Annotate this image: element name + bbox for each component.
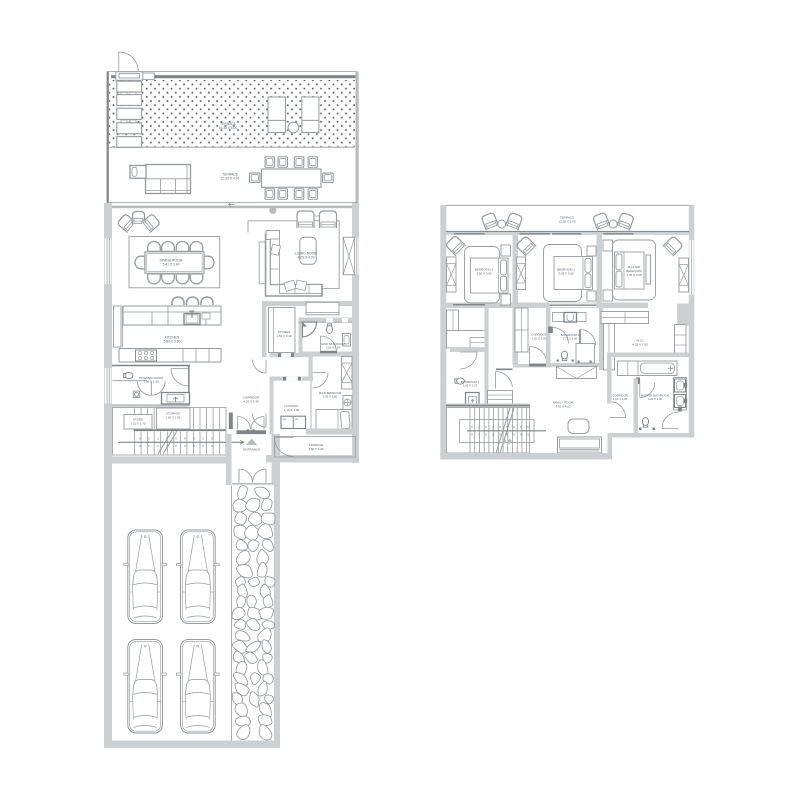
svg-text:BEDROOM 23.60 X 3.05: BEDROOM 23.60 X 3.05	[475, 268, 493, 276]
svg-text:STORES1.50 X 3.10: STORES1.50 X 3.10	[276, 330, 292, 338]
svg-text:BEDROOM 13.55 X 3.05: BEDROOM 13.55 X 3.05	[557, 268, 575, 276]
svg-text:WM: WM	[283, 419, 287, 421]
svg-text:CORRIDOR4.20 X 1.40: CORRIDOR4.20 X 1.40	[243, 396, 261, 404]
svg-text:TERRACE4.50 X 1.05: TERRACE4.50 X 1.05	[308, 443, 324, 451]
svg-text:BATHROOM 12.75 X 1.60: BATHROOM 12.75 X 1.60	[561, 333, 580, 341]
svg-text:STORAGE1.60 X 1.05: STORAGE1.60 X 1.05	[166, 412, 181, 420]
svg-text:DINING ROOM5.41 X 3.40: DINING ROOM5.41 X 3.40	[160, 259, 183, 267]
svg-text:LAUNDRY1.75 X 3.05: LAUNDRY1.75 X 3.05	[284, 404, 300, 412]
svg-text:TERRACE12.20 X 1.65: TERRACE12.20 X 1.65	[558, 216, 575, 224]
svg-text:KITCHEN5.80 X 3.90: KITCHEN5.80 X 3.90	[164, 336, 181, 344]
svg-text:ENTRANCE: ENTRANCE	[243, 448, 260, 452]
svg-text:LIVING ROOM4.25 X 4.20: LIVING ROOM4.25 X 4.20	[295, 252, 317, 260]
svg-text:TERRACE16.40 X 5.00: TERRACE16.40 X 5.00	[219, 122, 238, 130]
svg-text:FAMILY ROOM4.52 X 4.62: FAMILY ROOM4.52 X 4.62	[553, 401, 574, 409]
svg-text:DM: DM	[295, 419, 299, 421]
svg-text:BATHROOM 21.60 X 2.75: BATHROOM 21.60 X 2.75	[461, 380, 480, 388]
svg-text:CORRIDOR1.20 X 3.35: CORRIDOR1.20 X 3.35	[531, 333, 547, 341]
svg-text:CORRIDOR1.10 X 1.45: CORRIDOR1.10 X 1.45	[612, 394, 627, 402]
svg-text:MASTERBEDROOM4.00 X 3.05: MASTERBEDROOM4.00 X 3.05	[626, 265, 642, 277]
svg-text:TERRACE10.20 X 4.95: TERRACE10.20 X 4.95	[221, 173, 240, 181]
